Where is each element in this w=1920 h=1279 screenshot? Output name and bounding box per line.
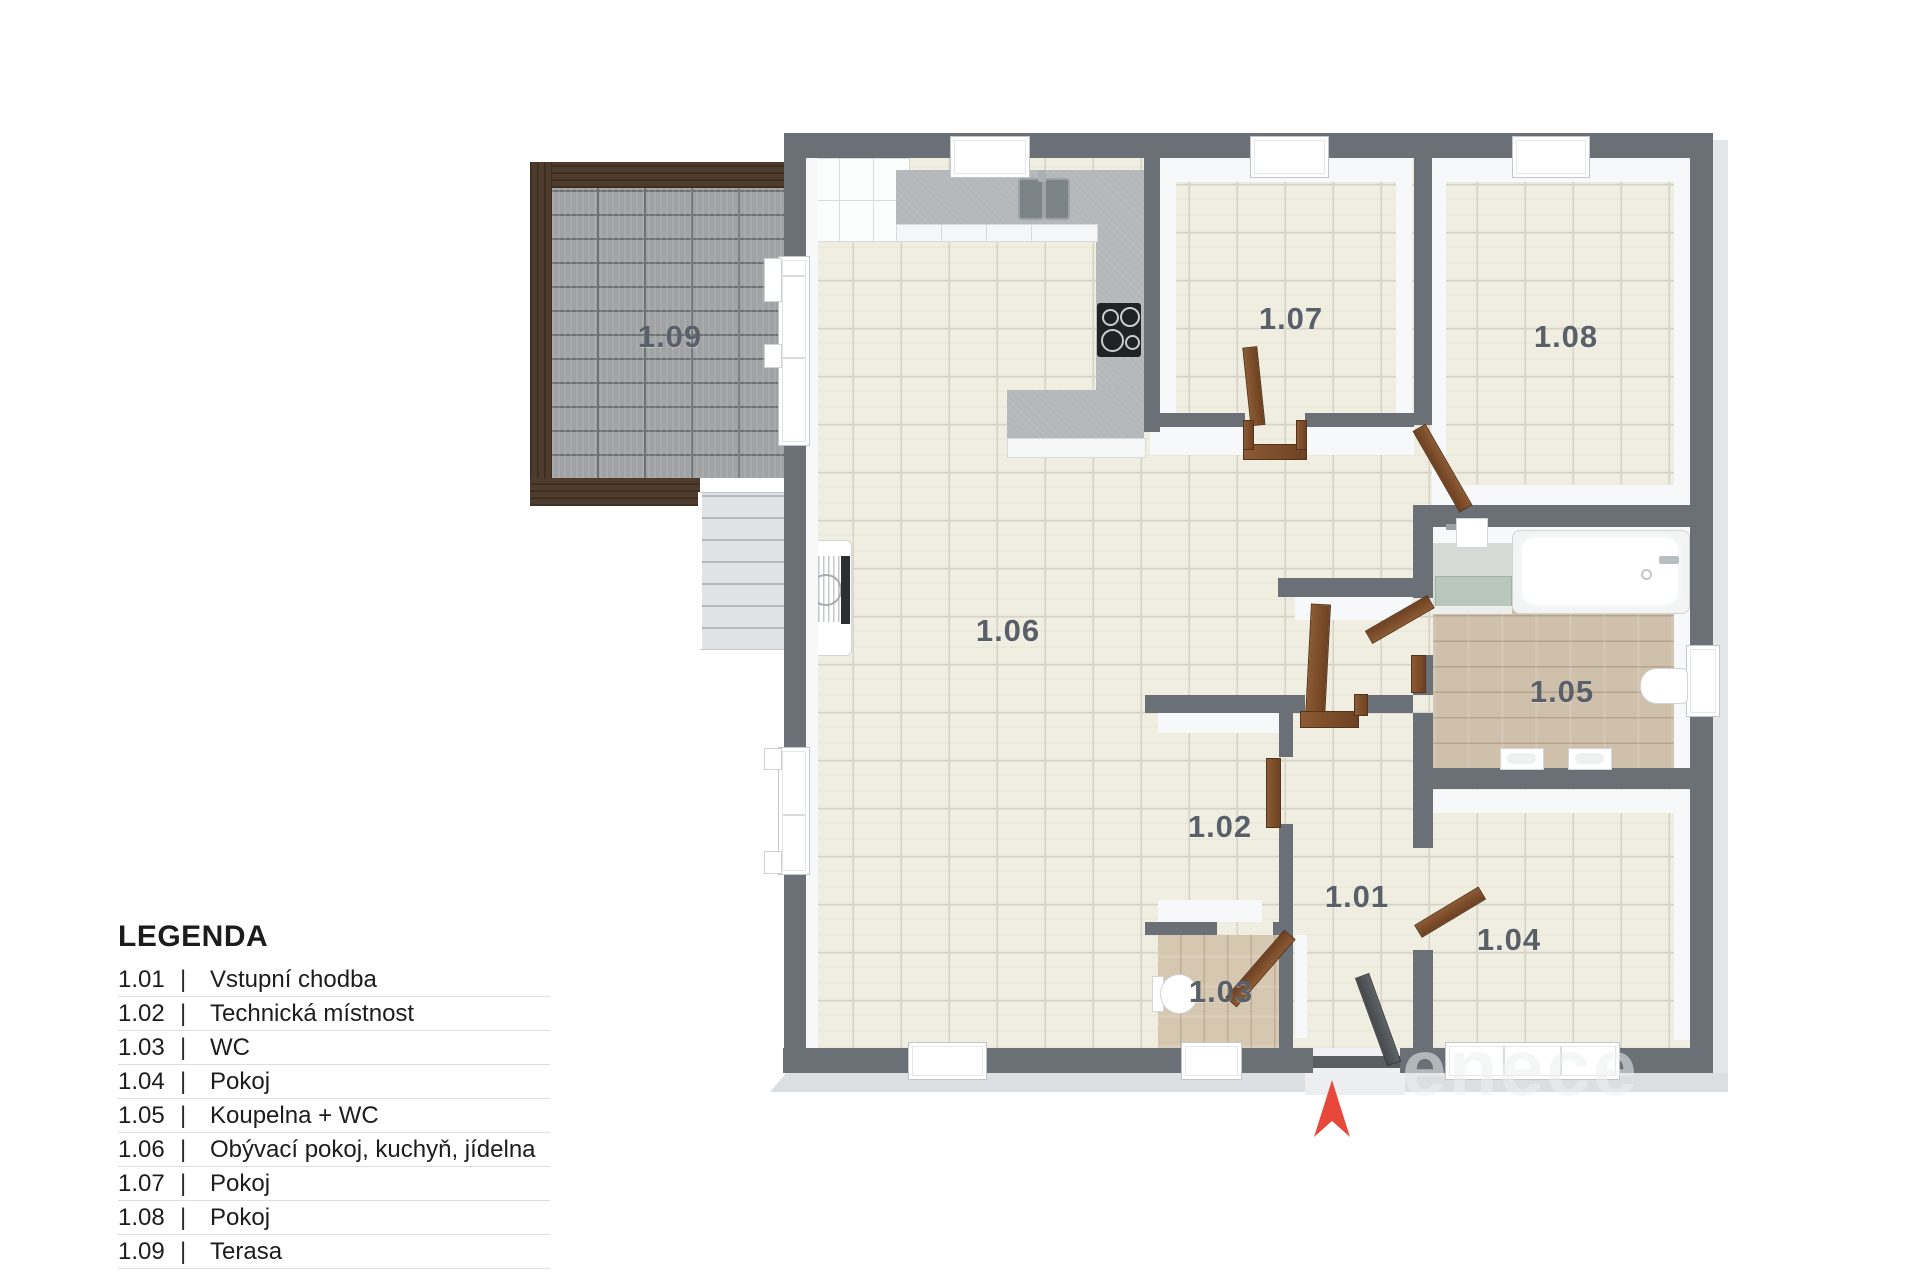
bath-vanity-faucet-icon bbox=[1446, 524, 1456, 530]
legend-row: 1.05|Koupelna + WC bbox=[118, 1099, 550, 1133]
legend-room-name: Obývací pokoj, kuchyň, jídelna bbox=[210, 1136, 536, 1164]
wall-face bbox=[1396, 180, 1412, 413]
kitchen-cabinet-fronts bbox=[896, 224, 1098, 242]
window-left-lower bbox=[778, 747, 810, 875]
wall-face bbox=[1305, 425, 1414, 455]
watermark: enece bbox=[1402, 1022, 1639, 1114]
legend-separator: | bbox=[180, 966, 210, 994]
wall-exterior-right bbox=[1690, 158, 1713, 1073]
window-living-bottom bbox=[908, 1042, 987, 1080]
terrace-door bbox=[778, 256, 810, 446]
door-jamb bbox=[1243, 420, 1254, 450]
legend-room-name: Technická místnost bbox=[210, 1000, 414, 1028]
bath-vanity-icon bbox=[1456, 518, 1488, 548]
window-room107 bbox=[1250, 136, 1329, 178]
bathtub-icon bbox=[1512, 530, 1690, 614]
window-bathroom-right bbox=[1686, 645, 1720, 717]
terrace-frame-left bbox=[530, 162, 552, 506]
wall-corridor-top bbox=[1278, 578, 1413, 597]
legend-room-name: Vstupní chodba bbox=[210, 966, 377, 994]
legend-code: 1.05 bbox=[118, 1102, 180, 1130]
wall-102-right bbox=[1279, 713, 1293, 757]
wall-face bbox=[1433, 790, 1690, 813]
room-label-1.08: 1.08 bbox=[1534, 319, 1598, 355]
legend-code: 1.08 bbox=[118, 1204, 180, 1232]
legend-separator: | bbox=[180, 1136, 210, 1164]
room-label-1.04: 1.04 bbox=[1477, 922, 1541, 958]
window-kitchen bbox=[950, 136, 1030, 178]
shower-glass-icon bbox=[1435, 576, 1512, 608]
room-label-1.06: 1.06 bbox=[976, 613, 1040, 649]
legend-code: 1.06 bbox=[118, 1136, 180, 1164]
legend-room-name: Pokoj bbox=[210, 1204, 270, 1232]
wall-face bbox=[1160, 180, 1176, 413]
window-sill bbox=[764, 851, 782, 874]
wall-102-103 bbox=[1145, 922, 1217, 935]
legend-row: 1.04|Pokoj bbox=[118, 1065, 550, 1099]
legend: LEGENDA 1.01|Vstupní chodba1.02|Technick… bbox=[118, 920, 550, 1269]
window-room108 bbox=[1512, 136, 1590, 178]
wall-102-top bbox=[1145, 695, 1305, 713]
bath-sink-icon bbox=[1500, 748, 1544, 770]
wall-107-bottom bbox=[1150, 413, 1245, 427]
legend-room-name: Pokoj bbox=[210, 1170, 270, 1198]
legend-title: LEGENDA bbox=[118, 920, 550, 954]
terrace-frame-top bbox=[530, 162, 788, 188]
legend-room-name: Pokoj bbox=[210, 1068, 270, 1096]
kitchen-island bbox=[1007, 390, 1144, 438]
window-wc-bottom bbox=[1181, 1042, 1242, 1080]
cooktop-icon bbox=[1097, 303, 1141, 357]
legend-room-name: WC bbox=[210, 1034, 250, 1062]
entrance-step bbox=[1305, 1073, 1405, 1095]
legend-separator: | bbox=[180, 1102, 210, 1130]
room-label-1.01: 1.01 bbox=[1325, 879, 1389, 915]
terrace-door-sill bbox=[764, 258, 782, 302]
legend-separator: | bbox=[180, 1034, 210, 1062]
kitchen-faucet-icon bbox=[1038, 170, 1046, 182]
legend-separator: | bbox=[180, 1068, 210, 1096]
wall-face bbox=[1158, 713, 1281, 733]
kitchen-island-front bbox=[1007, 438, 1146, 458]
door-room102 bbox=[1266, 758, 1281, 828]
legend-row: 1.09|Terasa bbox=[118, 1235, 550, 1269]
legend-row: 1.06|Obývací pokoj, kuchyň, jídelna bbox=[118, 1133, 550, 1167]
kitchen-tall-cabinets bbox=[806, 158, 910, 242]
wall-face bbox=[1674, 813, 1690, 1040]
door-hall-leaf bbox=[1300, 711, 1359, 728]
room-label-1.03: 1.03 bbox=[1189, 974, 1253, 1010]
toilet-icon bbox=[1640, 668, 1688, 704]
legend-separator: | bbox=[180, 1000, 210, 1028]
legend-code: 1.02 bbox=[118, 1000, 180, 1028]
legend-row: 1.02|Technická místnost bbox=[118, 997, 550, 1031]
wall-bath-bottom bbox=[1413, 768, 1690, 789]
kitchen-sink-icon bbox=[1018, 178, 1044, 220]
wall-kitchen-107 bbox=[1144, 158, 1160, 432]
legend-row: 1.01|Vstupní chodba bbox=[118, 963, 550, 997]
room-label-1.02: 1.02 bbox=[1188, 809, 1252, 845]
window-sill bbox=[764, 748, 782, 770]
room-label-1.07: 1.07 bbox=[1259, 301, 1323, 337]
terrace-door-sill bbox=[764, 344, 782, 368]
room-label-1.05: 1.05 bbox=[1530, 674, 1594, 710]
door-jamb bbox=[1354, 694, 1368, 716]
legend-code: 1.09 bbox=[118, 1238, 180, 1266]
legend-rows: 1.01|Vstupní chodba1.02|Technická místno… bbox=[118, 963, 550, 1269]
legend-code: 1.07 bbox=[118, 1170, 180, 1198]
door-jamb bbox=[1296, 420, 1307, 450]
legend-row: 1.08|Pokoj bbox=[118, 1201, 550, 1235]
wall-face bbox=[1150, 425, 1245, 455]
bath-sink-icon bbox=[1568, 748, 1612, 770]
kitchen-sink-icon bbox=[1044, 178, 1070, 220]
wall-107-bottom bbox=[1305, 413, 1414, 427]
legend-code: 1.01 bbox=[118, 966, 180, 994]
legend-separator: | bbox=[180, 1238, 210, 1266]
legend-room-name: Koupelna + WC bbox=[210, 1102, 379, 1130]
wall-face bbox=[1295, 935, 1307, 1038]
wall-face bbox=[1674, 180, 1690, 507]
shower-curb bbox=[1433, 606, 1512, 614]
room-label-1.09: 1.09 bbox=[638, 319, 702, 355]
legend-code: 1.03 bbox=[118, 1034, 180, 1062]
slab-edge-right bbox=[1713, 140, 1728, 1090]
stairs bbox=[698, 492, 791, 650]
legend-code: 1.04 bbox=[118, 1068, 180, 1096]
wall-107-108 bbox=[1414, 158, 1432, 425]
legend-row: 1.07|Pokoj bbox=[118, 1167, 550, 1201]
door-jamb bbox=[1411, 655, 1426, 693]
legend-room-name: Terasa bbox=[210, 1238, 282, 1266]
legend-row: 1.03|WC bbox=[118, 1031, 550, 1065]
terrace-frame-bottom bbox=[530, 478, 700, 506]
wall-face bbox=[1158, 900, 1262, 922]
legend-separator: | bbox=[180, 1204, 210, 1232]
floorplan-page: 1.091.061.071.081.051.021.011.031.04 ene… bbox=[0, 0, 1920, 1279]
legend-separator: | bbox=[180, 1170, 210, 1198]
